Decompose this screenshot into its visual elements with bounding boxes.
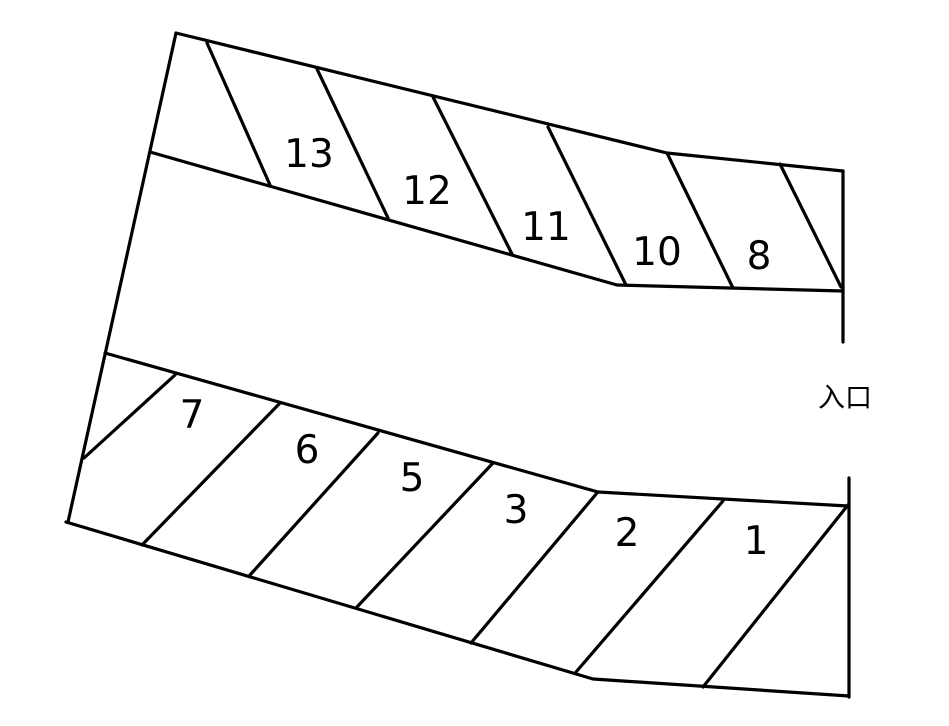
parking-lot-diagram: 13 12 11 10 8 7 6 5 3 2 1 入口 [0,0,949,726]
lot-left-edge [68,33,176,522]
bottom-row-bottom-edge [66,522,849,696]
space-label-1: 1 [744,519,769,564]
top-row-top-edge [176,33,843,171]
divider-7-6 [142,403,280,545]
space-label-2: 2 [615,511,640,556]
divider-right-of-1 [703,505,848,687]
space-label-12: 12 [402,169,452,214]
space-label-3: 3 [504,488,529,533]
space-label-6: 6 [295,428,320,473]
divider-right-of-8 [780,164,841,287]
space-label-10: 10 [632,230,682,275]
space-label-7: 7 [180,393,205,438]
divider-5-3 [356,463,493,608]
space-label-13: 13 [284,132,334,177]
space-label-8: 8 [747,234,772,279]
entrance-label: 入口 [818,383,872,414]
parking-lot-canvas: 13 12 11 10 8 7 6 5 3 2 1 入口 [0,0,949,726]
divider-3-2 [471,493,597,643]
space-label-11: 11 [521,205,571,250]
bottom-row-top-edge [105,353,848,506]
divider-left-of-13 [207,43,270,185]
space-label-5: 5 [400,456,425,501]
divider-2-1 [576,501,723,672]
